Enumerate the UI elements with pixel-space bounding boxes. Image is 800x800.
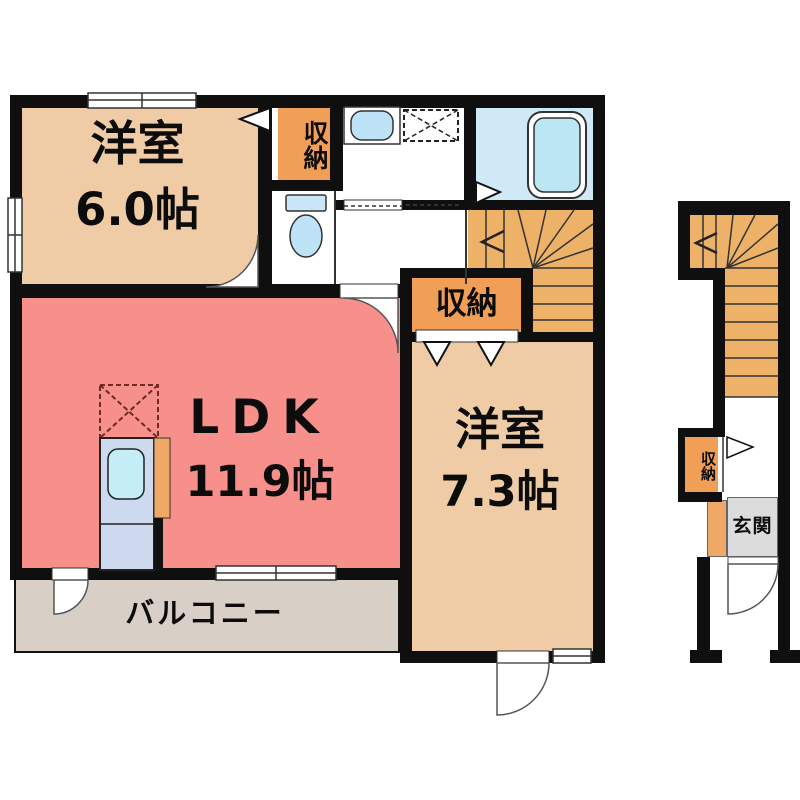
toilet-icon — [286, 195, 326, 257]
balcony-label: バルコニー — [55, 598, 355, 628]
door-arc-bedroom1 — [206, 235, 258, 287]
folding-door-closet-mid — [416, 330, 518, 365]
door-arc-bedroom2 — [497, 651, 549, 715]
floor-plan: 洋室 6.0帖 収納 LDK 11.9帖 収納 洋室 7.3帖 バルコニー 収納… — [0, 0, 800, 800]
closet-1f-label: 収納 — [689, 442, 715, 490]
bedroom1-size-label: 6.0帖 — [30, 186, 245, 233]
window-icon — [8, 93, 591, 663]
stairs-1f-icon — [696, 215, 778, 397]
entrance-label: 玄関 — [726, 517, 779, 537]
sliding-door-washroom — [344, 200, 460, 210]
door-triangle-closet-1f — [723, 437, 753, 492]
door-triangle-bathroom — [476, 182, 500, 203]
closet-top-label: 収納 — [283, 112, 327, 178]
ldk-size-label: 11.9帖 — [120, 460, 400, 505]
washing-machine-area-icon — [404, 110, 458, 141]
ldk-name-label: LDK — [120, 393, 400, 442]
sink-icon — [344, 107, 400, 144]
bedroom2-name-label: 洋室 — [405, 406, 595, 453]
bathtub-icon — [528, 112, 586, 198]
bedroom1-name-label: 洋室 — [30, 120, 245, 169]
door-arc-entrance — [728, 557, 778, 614]
closet-mid-label: 収納 — [414, 288, 519, 321]
bedroom2-size-label: 7.3帖 — [405, 470, 595, 515]
door-arc-ldk — [340, 284, 398, 353]
